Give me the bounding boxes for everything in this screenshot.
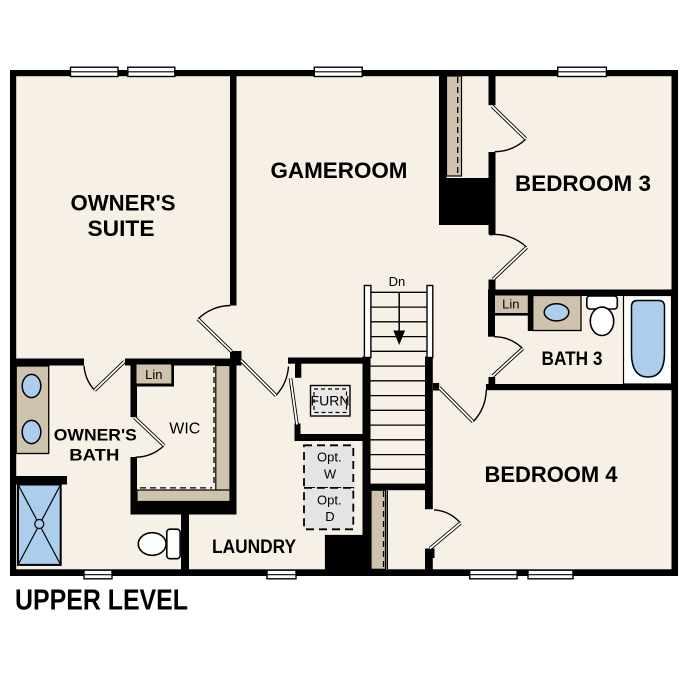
- svg-text:LAUNDRY: LAUNDRY: [212, 537, 296, 558]
- svg-text:Opt.: Opt.: [317, 450, 342, 465]
- svg-text:GAMEROOM: GAMEROOM: [271, 158, 408, 183]
- svg-text:Opt.: Opt.: [317, 493, 342, 508]
- svg-text:BEDROOM 3: BEDROOM 3: [515, 171, 651, 196]
- svg-text:Lin: Lin: [145, 367, 162, 382]
- svg-text:OWNER'S: OWNER'S: [54, 425, 137, 444]
- svg-text:SUITE: SUITE: [88, 216, 155, 241]
- svg-text:Lin: Lin: [502, 297, 519, 312]
- svg-text:W: W: [324, 467, 337, 482]
- svg-text:Dn: Dn: [389, 274, 406, 289]
- svg-text:BATH: BATH: [69, 446, 119, 465]
- svg-text:BATH 3: BATH 3: [542, 349, 603, 370]
- svg-text:UPPER LEVEL: UPPER LEVEL: [15, 585, 188, 617]
- svg-text:WIC: WIC: [169, 421, 200, 438]
- svg-text:BEDROOM 4: BEDROOM 4: [485, 462, 619, 487]
- svg-text:FURN: FURN: [311, 393, 350, 409]
- svg-text:OWNER'S: OWNER'S: [71, 191, 176, 216]
- svg-text:D: D: [325, 509, 334, 524]
